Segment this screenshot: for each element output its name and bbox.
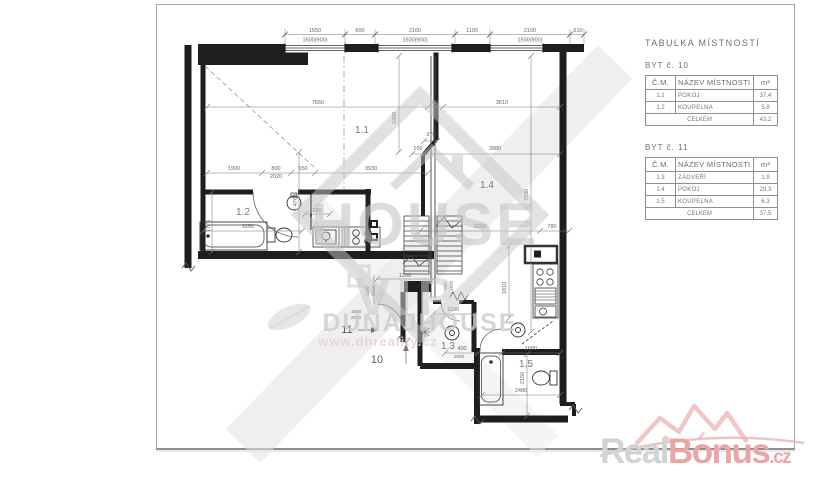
- dim-label: 1500(900): [302, 38, 327, 44]
- room-label-1-2: 1.2: [236, 207, 250, 218]
- room-tables-panel: TABULKA MÍSTNOSTÍ BYT č. 10 Č.M. NÁZEV M…: [645, 38, 778, 220]
- dim-label: 610: [573, 28, 582, 34]
- logo-bonus-text: Bonus: [668, 432, 769, 471]
- dim-label: 1500(900): [402, 38, 427, 44]
- window-1: [285, 44, 345, 53]
- apartment-11-label: 11: [341, 324, 352, 336]
- tables-title: TABULKA MÍSTNOSTÍ: [645, 38, 778, 48]
- table-row: 1.1 POKOJ 37.4: [646, 90, 778, 102]
- kitchen-sink-11: [535, 306, 556, 317]
- dim-label: 370: [426, 132, 435, 138]
- stove-burner: [537, 279, 543, 285]
- dim-label: 1200: [399, 273, 411, 279]
- stove-burner: [547, 279, 553, 285]
- table-total-row: CELKEM 37.5: [646, 208, 778, 220]
- toilet-15: [533, 371, 550, 385]
- door-arc-apt10: [377, 304, 403, 330]
- realbonus-wordmark: RealBonus.cz: [600, 434, 790, 469]
- dimension-labels: 1550 1500(900) 600 2160 1500(900) 1100 2…: [206, 28, 583, 394]
- dim-label: 1550: [309, 28, 321, 34]
- dim-label: 780: [547, 224, 556, 230]
- dim-label: 2020: [454, 354, 465, 359]
- room-label-1-4: 1.4: [480, 180, 494, 191]
- windows: [285, 44, 543, 53]
- stove-burner: [353, 238, 360, 245]
- col-header-cm: Č.M.: [646, 158, 676, 172]
- stove-burner: [537, 269, 543, 275]
- door-arc-15: [480, 329, 501, 350]
- table-header-row: Č.M. NÁZEV MÍSTNOSTI m²: [646, 76, 778, 90]
- dim-label: 1500(900): [517, 38, 542, 44]
- dim-label: 1030: [447, 307, 459, 313]
- window-2: [378, 44, 452, 53]
- apartment-10-label: 10: [371, 354, 383, 366]
- sliding-door: [522, 321, 553, 344]
- logo-cz-text: .cz: [769, 447, 790, 468]
- dim-label: 1775: [206, 220, 212, 232]
- kitchen-11: [522, 246, 558, 344]
- dim-label: 1100: [466, 28, 478, 34]
- dim-label: 3200: [474, 224, 486, 230]
- col-header-name: NÁZEV MÍSTNOSTI: [676, 76, 754, 90]
- stove-burner: [547, 269, 553, 275]
- byt11-table: Č.M. NÁZEV MÍSTNOSTI m² 1.3 ZÁDVEŘÍ 1.9 …: [645, 157, 778, 220]
- table-row: 1.5 KOUPELNA 6.3: [646, 196, 778, 208]
- entry-labels: 11 10: [341, 324, 409, 366]
- toilet-tank-15: [550, 371, 557, 385]
- dim-label: 280: [312, 208, 321, 214]
- staircase: [403, 56, 463, 298]
- dim-label: 800: [271, 166, 280, 172]
- dim-label: 100: [429, 100, 438, 106]
- door-arcs: [253, 192, 501, 350]
- col-header-name: NÁZEV MÍSTNOSTI: [676, 158, 754, 172]
- drain-symbol: [420, 327, 430, 337]
- dim-label: 2400: [392, 112, 398, 124]
- dim-label: 3250: [242, 224, 254, 230]
- window-3: [490, 44, 543, 53]
- dim-label: 2010: [351, 315, 362, 320]
- wall-break-marks: [182, 263, 582, 424]
- dim-label: 2010: [371, 285, 376, 296]
- dim-label: 400: [457, 346, 466, 352]
- dim-label: 2150: [520, 372, 526, 384]
- byt10-table: Č.M. NÁZEV MÍSTNOSTI m² 1.1 POKOJ 37.4 1…: [645, 75, 778, 126]
- dim-label: 7650: [312, 100, 324, 106]
- logo-real-text: Real: [600, 432, 668, 471]
- dim-label: 2100: [524, 28, 536, 34]
- table-row: 1.3 ZÁDVEŘÍ 1.9: [646, 172, 778, 184]
- dim-label: 650: [298, 166, 307, 172]
- table-total-row: CELKEM 43.2: [646, 114, 778, 126]
- col-header-cm: Č.M.: [646, 76, 676, 90]
- arrow-up-icon: [403, 344, 409, 351]
- col-header-area: m²: [754, 158, 778, 172]
- door-arc-12: [253, 192, 298, 237]
- dim-label: 100: [413, 146, 422, 152]
- dim-label: 2160: [409, 28, 421, 34]
- dim-label: 900: [443, 282, 448, 290]
- dim-label: 1000: [351, 309, 362, 314]
- dim-label: 1900: [228, 166, 240, 172]
- byt11-heading: BYT č. 11: [645, 143, 778, 152]
- realbonus-logo: RealBonus.cz: [594, 398, 829, 480]
- washing-machine: [511, 323, 525, 337]
- dim-label: 2020: [270, 174, 282, 180]
- dim-label: 1810: [502, 282, 508, 294]
- radiator: [450, 292, 468, 300]
- table-row: 1.2 KOUPELNA 5.8: [646, 102, 778, 114]
- room-label-1-3: 1.3: [441, 341, 455, 352]
- dim-label: 3980: [489, 146, 501, 152]
- arrow-right-icon: [371, 327, 378, 333]
- room-label-1-1: 1.1: [355, 125, 369, 136]
- dim-label: 3610: [496, 100, 508, 106]
- dim-label: 4760: [293, 194, 299, 206]
- bathroom-12-fixtures: [200, 193, 301, 250]
- table-row: 1.4 POKOJ 29.3: [646, 184, 778, 196]
- dim-label: 1000: [365, 285, 370, 296]
- dim-label: 3930: [365, 166, 377, 172]
- dim-label: 1680: [525, 346, 537, 352]
- shafts: [370, 220, 378, 241]
- tub-drain: [206, 234, 210, 238]
- byt10-heading: BYT č. 10: [645, 61, 778, 70]
- col-header-area: m²: [754, 76, 778, 90]
- floorplan-page: { "drawing": { "dims_top": { "d1": "1550…: [0, 0, 829, 480]
- table-header-row: Č.M. NÁZEV MÍSTNOSTI m²: [646, 158, 778, 172]
- stove-burner: [353, 230, 360, 237]
- dim-label: 2480: [515, 388, 527, 394]
- room-label-1-5: 1.5: [519, 359, 533, 370]
- dim-label: 600: [355, 28, 364, 34]
- dim-label: 1970: [449, 280, 454, 291]
- washing-machine: [445, 326, 459, 340]
- dim-label: 7930: [524, 189, 530, 201]
